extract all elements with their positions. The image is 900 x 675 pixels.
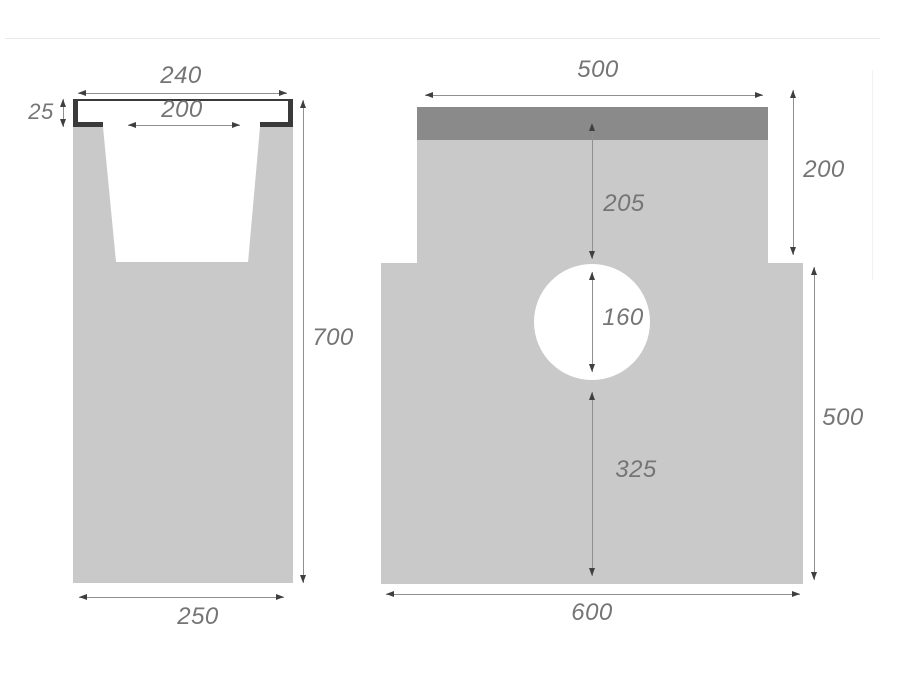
dim-label-205: 205: [603, 190, 645, 218]
dim-line-lower-height-500: [814, 267, 815, 580]
dim-line-upper-height-200: [793, 90, 794, 255]
dim-label-500-top: 500: [577, 56, 619, 84]
dim-line-top-to-outlet-205: [592, 123, 593, 259]
dim-line-top-width-500: [425, 95, 763, 96]
right-view-front: 500 200 205 160 325 500 600: [0, 0, 900, 675]
dim-label-500-right: 500: [822, 404, 864, 432]
dim-label-160: 160: [602, 304, 644, 332]
dim-label-200-right: 200: [803, 156, 845, 184]
dim-line-base-width-600: [386, 594, 800, 595]
diagram-canvas: 240 200 25 700 250 500 200 205 160 325 5: [0, 0, 900, 675]
dim-label-600: 600: [571, 599, 613, 627]
dim-label-325: 325: [615, 456, 657, 484]
dim-line-outlet-to-base-325: [592, 392, 593, 576]
dim-line-outlet-diameter-160: [592, 272, 593, 372]
